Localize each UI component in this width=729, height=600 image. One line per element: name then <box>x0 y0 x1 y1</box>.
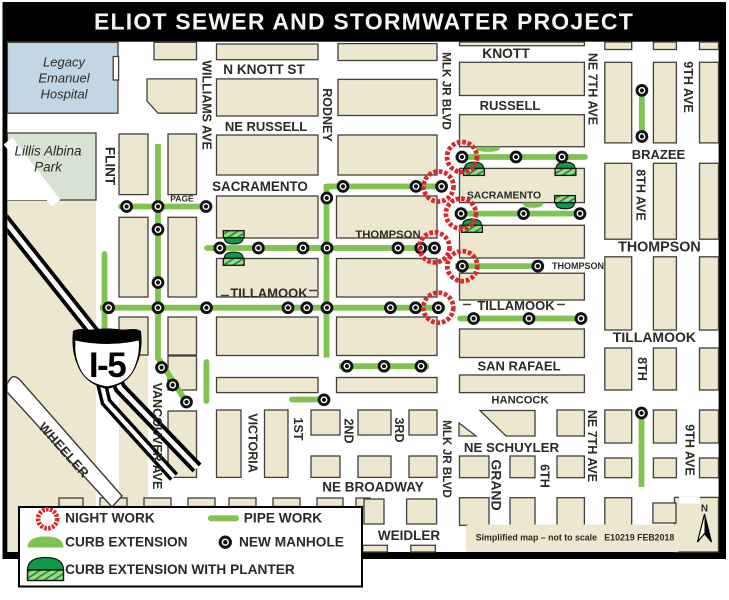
svg-text:ELIOT SEWER AND STORMWATER PRO: ELIOT SEWER AND STORMWATER PROJECT <box>94 9 634 35</box>
svg-text:NE RUSSELL: NE RUSSELL <box>225 119 307 134</box>
svg-text:PAGE: PAGE <box>170 194 194 204</box>
svg-text:HANCOCK: HANCOCK <box>491 395 548 407</box>
svg-text:THOMPSON: THOMPSON <box>552 261 604 271</box>
svg-text:SAN RAFAEL: SAN RAFAEL <box>477 359 560 374</box>
svg-text:2ND: 2ND <box>342 418 356 443</box>
svg-text:N KNOTT ST: N KNOTT ST <box>223 62 305 77</box>
svg-text:MLK JR BLVD: MLK JR BLVD <box>440 420 453 498</box>
svg-text:6TH: 6TH <box>537 464 551 488</box>
svg-text:Lillis Albina: Lillis Albina <box>14 144 82 159</box>
svg-text:WILLIAMS AVE: WILLIAMS AVE <box>200 60 214 150</box>
svg-text:1ST: 1ST <box>291 418 305 441</box>
svg-text:Park: Park <box>34 160 63 175</box>
svg-text:8TH AVE: 8TH AVE <box>634 169 648 220</box>
svg-text:FLINT: FLINT <box>103 147 118 186</box>
svg-text:WEIDLER: WEIDLER <box>378 528 440 543</box>
svg-text:CURB EXTENSION: CURB EXTENSION <box>65 535 187 550</box>
svg-text:Simplified map – not to scale: Simplified map – not to scale E10219 FEB… <box>476 533 675 543</box>
svg-text:PIPE WORK: PIPE WORK <box>244 511 322 526</box>
svg-text:9TH AVE: 9TH AVE <box>683 424 697 475</box>
svg-text:KNOTT: KNOTT <box>482 46 530 61</box>
svg-text:MLK JR BLVD: MLK JR BLVD <box>440 52 453 130</box>
svg-text:CURB EXTENSION WITH PLANTER: CURB EXTENSION WITH PLANTER <box>65 562 295 577</box>
svg-text:I-5: I-5 <box>89 346 126 385</box>
svg-text:N: N <box>701 504 708 515</box>
svg-text:NE BROADWAY: NE BROADWAY <box>322 480 424 495</box>
svg-text:NIGHT WORK: NIGHT WORK <box>65 511 155 526</box>
svg-text:RODNEY: RODNEY <box>320 88 334 142</box>
svg-text:NE 7TH AVE: NE 7TH AVE <box>585 410 599 482</box>
svg-text:RUSSELL: RUSSELL <box>480 98 541 113</box>
svg-text:8TH: 8TH <box>635 357 649 381</box>
svg-text:SACRAMENTO: SACRAMENTO <box>212 179 308 194</box>
svg-text:VANCOUVER AVE: VANCOUVER AVE <box>150 383 164 490</box>
svg-text:GRAND: GRAND <box>489 459 505 510</box>
svg-text:SACRAMENTO: SACRAMENTO <box>467 191 541 202</box>
svg-text:TILLAMOOK: TILLAMOOK <box>613 329 696 345</box>
svg-text:NE SCHUYLER: NE SCHUYLER <box>464 440 560 455</box>
svg-text:VICTORIA: VICTORIA <box>246 413 260 473</box>
svg-text:TILLAMOOK: TILLAMOOK <box>230 286 308 301</box>
svg-text:NEW MANHOLE: NEW MANHOLE <box>239 535 344 550</box>
svg-text:Legacy: Legacy <box>43 55 86 70</box>
svg-text:9TH AVE: 9TH AVE <box>681 61 695 112</box>
svg-text:Hospital: Hospital <box>41 87 89 102</box>
svg-text:THOMPSON: THOMPSON <box>355 229 420 241</box>
svg-text:NE 7TH AVE: NE 7TH AVE <box>586 53 600 125</box>
svg-text:THOMPSON: THOMPSON <box>618 240 701 256</box>
svg-text:TILLAMOOK: TILLAMOOK <box>477 298 555 313</box>
svg-text:BRAZEE: BRAZEE <box>632 147 686 162</box>
svg-text:3RD: 3RD <box>392 417 406 442</box>
svg-text:Emanuel: Emanuel <box>38 71 90 86</box>
